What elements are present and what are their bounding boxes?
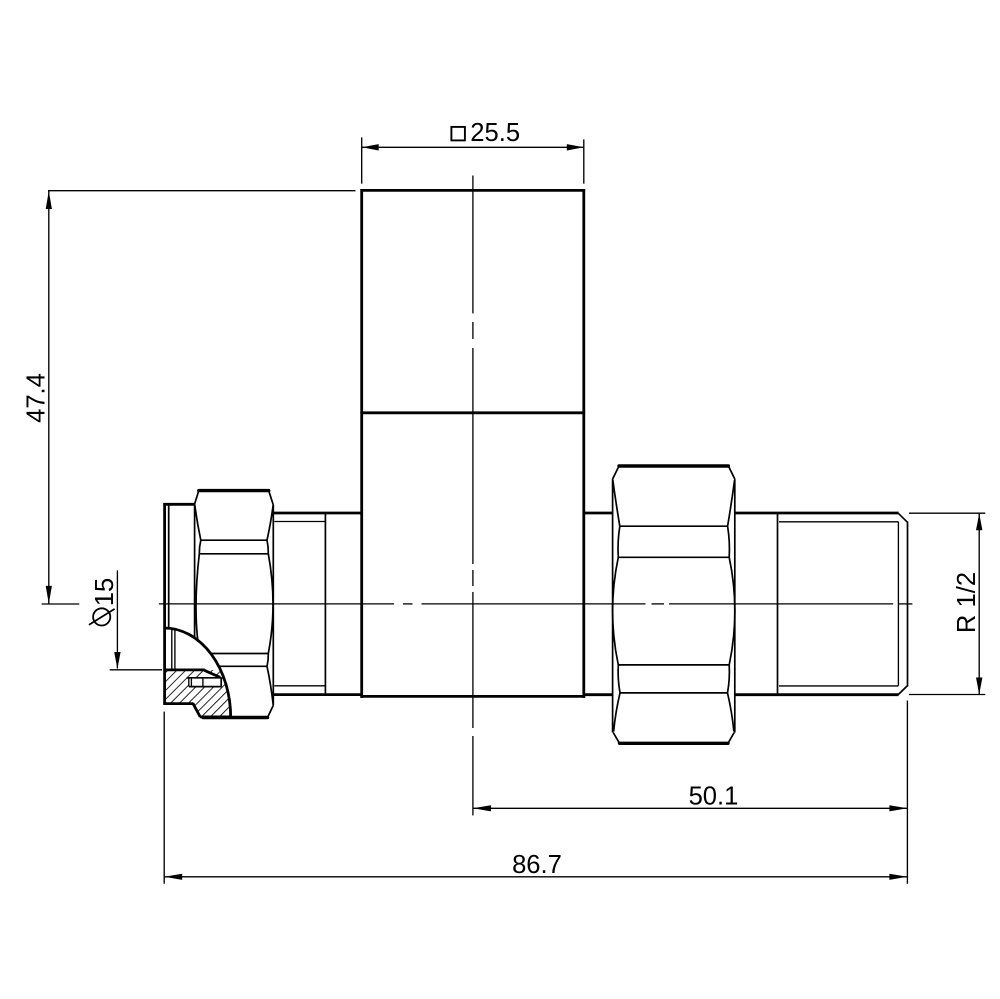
svg-text:R 1/2: R 1/2: [953, 572, 981, 633]
svg-text:50.1: 50.1: [689, 783, 739, 811]
svg-text:15: 15: [91, 578, 119, 606]
svg-text:86.7: 86.7: [512, 851, 562, 879]
svg-text:47.4: 47.4: [22, 373, 50, 423]
svg-text:25.5: 25.5: [470, 119, 520, 147]
